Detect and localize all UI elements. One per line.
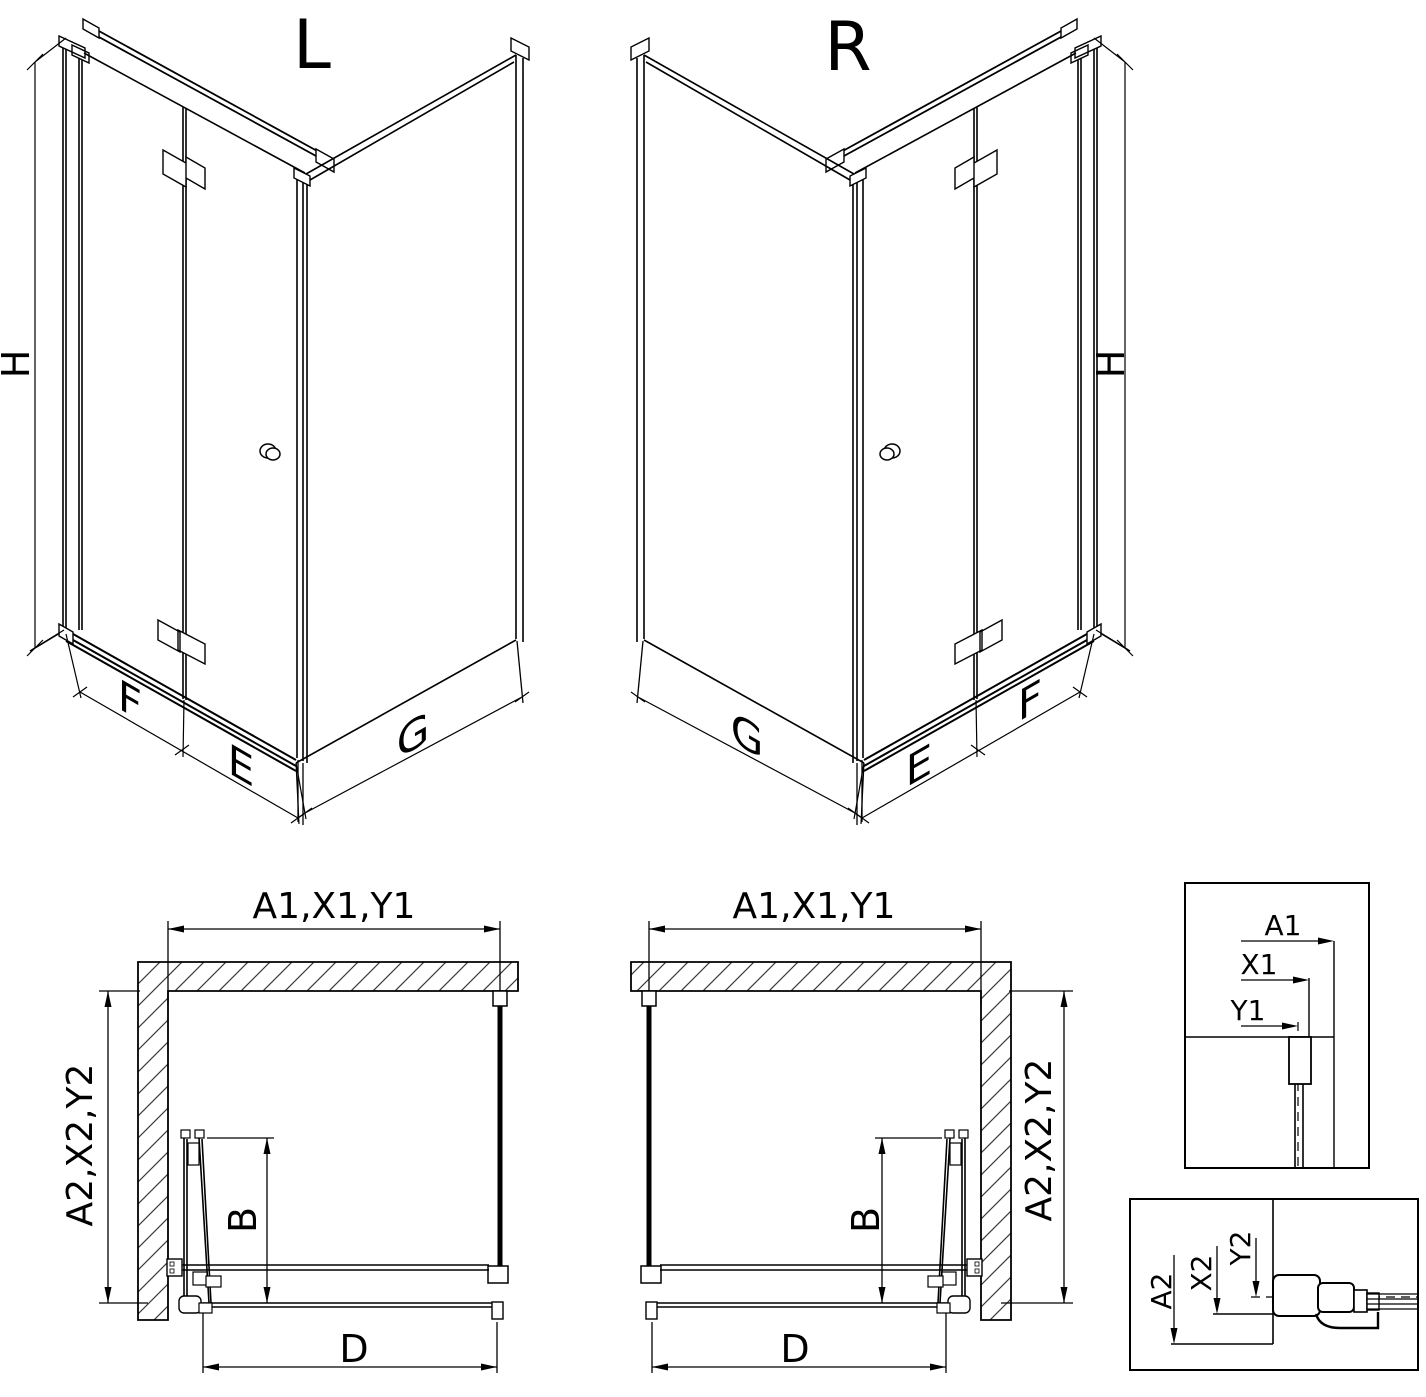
right-corner-width-dim-label: E <box>906 733 933 797</box>
right-plan-entry-width-label: D <box>780 1327 809 1371</box>
top-detail-glass <box>1295 1084 1303 1168</box>
right-version-label: R <box>824 8 871 87</box>
left-plan-width-dim-label: A1,X1,Y1 <box>253 886 416 927</box>
top-detail-a1-label: A1 <box>1265 909 1302 942</box>
bottom-detail-box: A2 X2 Y2 <box>1130 1199 1418 1370</box>
top-detail-ref-lines <box>1309 941 1334 1168</box>
right-plan-wall <box>631 962 1011 1320</box>
left-plan-wall <box>138 962 518 1320</box>
left-side-wall-dim-label: G <box>397 702 430 770</box>
right-plan-depth-dim-label: A2,X2,Y2 <box>1019 1059 1060 1222</box>
bottom-detail-profile <box>1273 1275 1417 1328</box>
right-side-wall-dim-label: G <box>731 702 764 770</box>
left-height-dim-label: H <box>0 350 38 379</box>
left-plan-depth-dim-label: A2,X2,Y2 <box>60 1064 101 1227</box>
top-detail-x1-label: X1 <box>1241 948 1278 981</box>
drawing-canvas: L H F E G R H F E G A1,X1,Y1 A2,X2,Y2 B … <box>0 0 1426 1397</box>
left-plan-door-protrusion-label: B <box>221 1207 265 1233</box>
right-door-width-dim-label: F <box>1018 669 1042 732</box>
top-detail-box: A1 X1 Y1 <box>1185 883 1369 1168</box>
bottom-detail-a2-label: A2 <box>1145 1273 1178 1310</box>
top-detail-profile <box>1289 1037 1311 1084</box>
left-isometric-view: L H F E G <box>0 6 529 825</box>
bottom-detail-y2-label: Y2 <box>1224 1231 1257 1267</box>
top-detail-y1-label: Y1 <box>1230 994 1266 1027</box>
technical-drawing: L H F E G R H F E G A1,X1,Y1 A2,X2,Y2 B … <box>0 0 1426 1397</box>
bottom-detail-ref-lines <box>1171 1314 1273 1344</box>
left-plan-entry-width-label: D <box>339 1327 368 1371</box>
left-version-label: L <box>293 6 331 85</box>
right-plan-width-dim-label: A1,X1,Y1 <box>733 886 896 927</box>
bottom-detail-x2-label: X2 <box>1185 1255 1218 1292</box>
left-door-width-dim-label: F <box>118 669 142 732</box>
left-plan-view: A1,X1,Y1 A2,X2,Y2 B D <box>60 886 518 1373</box>
right-plan-door-protrusion-label: B <box>844 1207 888 1233</box>
left-corner-width-dim-label: E <box>228 733 255 797</box>
right-isometric-view: R H F E G <box>631 8 1133 825</box>
right-height-dim-label: H <box>1089 350 1133 379</box>
right-plan-view: A1,X1,Y1 A2,X2,Y2 B D <box>631 886 1073 1373</box>
